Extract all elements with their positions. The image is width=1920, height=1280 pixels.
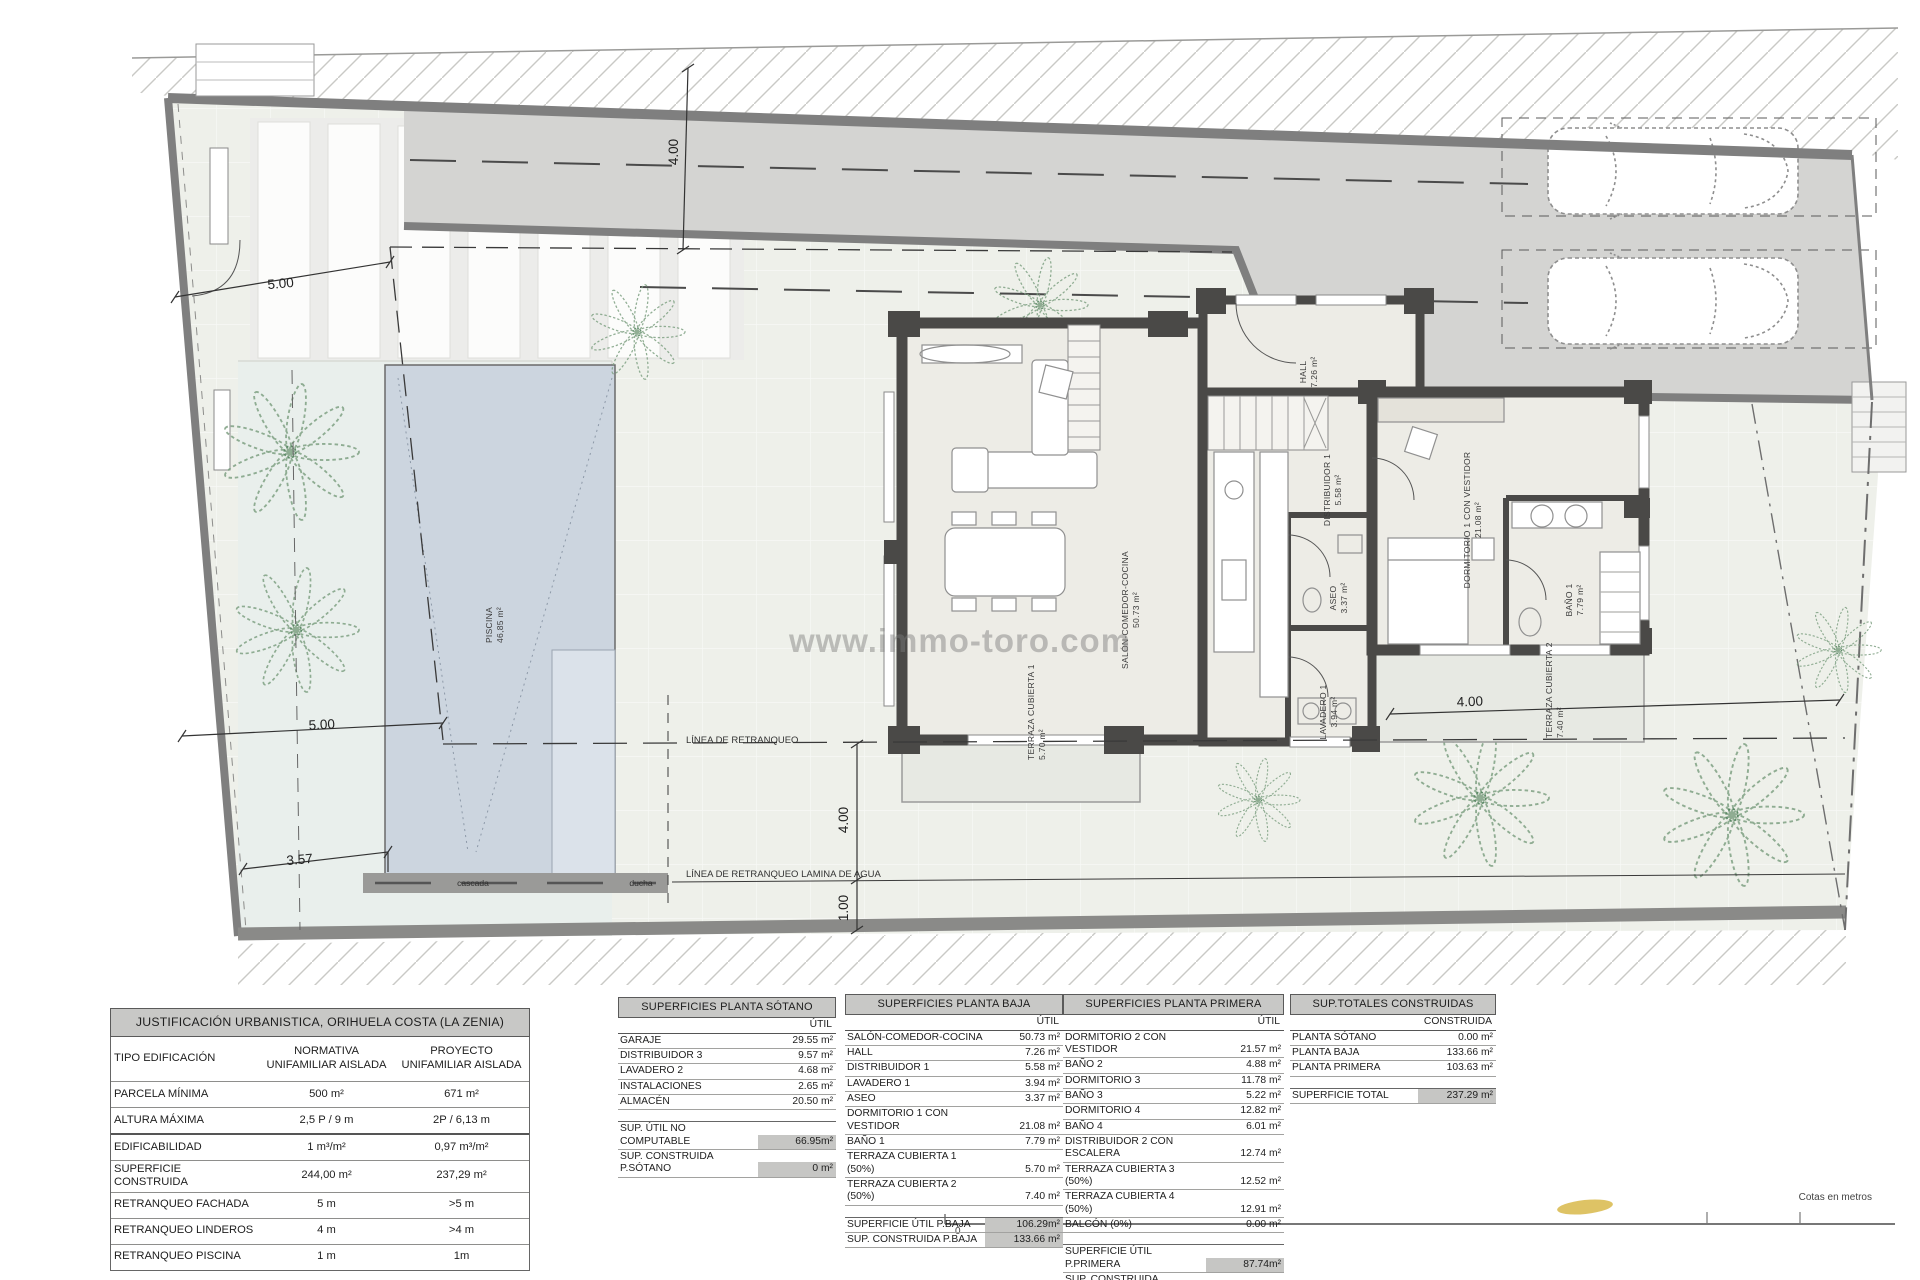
svg-text:7.79 m²: 7.79 m² [1575, 585, 1585, 616]
cell-proyecto: 0,97 m³/m² [394, 1139, 529, 1156]
table-planta-sotano: SUPERFICIES PLANTA SÓTANO ÚTIL GARAJE29.… [618, 997, 836, 1178]
svg-text:BAÑO 1: BAÑO 1 [1564, 584, 1574, 617]
cell-value: 0.00 m² [1206, 1218, 1284, 1232]
kitchen-counter [1260, 452, 1288, 697]
svg-text:HALL: HALL [1298, 361, 1308, 383]
gate-window [214, 390, 230, 470]
cell-proyecto: 1m [394, 1248, 529, 1265]
svg-text:DORMITORIO 1 CON VESTIDOR: DORMITORIO 1 CON VESTIDOR [1462, 452, 1472, 589]
cell-proyecto: 671 m² [394, 1086, 529, 1103]
table-row: BAÑO 46.01 m² [1063, 1120, 1284, 1135]
table-row: RETRANQUEO LINDEROS4 m>4 m [111, 1219, 529, 1245]
cell-label: TERRAZA CUBIERTA 1 (50%) [845, 1150, 985, 1177]
kitchen-island [1214, 452, 1254, 652]
pool: PISCINA 46,85 m² [385, 365, 615, 875]
table-row: SUP. CONSTRUIDA P.SÓTANO0 m² [618, 1150, 836, 1178]
room-label-bano1: BAÑO 1 7.79 m² [1564, 584, 1585, 617]
col-header: ÚTIL [1037, 1016, 1059, 1028]
table-row: ASEO3.37 m² [845, 1092, 1063, 1107]
cell-value: 6.01 m² [1206, 1120, 1284, 1134]
room-label-piscina: PISCINA 46,85 m² [484, 607, 505, 643]
table-row: EDIFICABILIDAD1 m³/m²0,97 m³/m² [111, 1135, 529, 1161]
cell-value: 3.37 m² [985, 1092, 1063, 1106]
cell-value: 29.55 m² [758, 1034, 836, 1048]
room-label-aseo: ASEO 3.37 m² [1328, 583, 1349, 614]
table-row: SUP. CONSTRUIDA P.PRIMERA103.63 m² [1063, 1273, 1284, 1280]
cell-label: RETRANQUEO PISCINA [111, 1248, 259, 1265]
cell-value: 66.95m² [758, 1135, 836, 1149]
cell-label: DORMITORIO 4 [1063, 1104, 1206, 1118]
cell-normativa: 1 m [259, 1248, 394, 1265]
table-row: PLANTA BAJA133.66 m² [1290, 1046, 1496, 1061]
floor-plan-sheet: PISCINA 46,85 m² cascada ducha [0, 0, 1920, 1280]
table-row: PLANTA SÓTANO0.00 m² [1290, 1031, 1496, 1046]
table-row: ALMACÉN20.50 m² [618, 1095, 836, 1110]
scale-marker [1556, 1197, 1613, 1217]
cell-label: SUP. CONSTRUIDA P.SÓTANO [618, 1150, 758, 1177]
table-row: RETRANQUEO FACHADA5 m>5 m [111, 1193, 529, 1219]
svg-text:5.00: 5.00 [308, 716, 335, 732]
cell-label: PLANTA SÓTANO [1290, 1031, 1418, 1045]
cell-normativa: NORMATIVA UNIFAMILIAR AISLADA [259, 1043, 394, 1074]
cell-value: 87.74m² [1206, 1258, 1284, 1272]
cell-label: ASEO [845, 1092, 985, 1106]
table-row: INSTALACIONES2.65 m² [618, 1080, 836, 1095]
cell-proyecto: 2P / 6,13 m [394, 1112, 529, 1129]
svg-text:7.26 m²: 7.26 m² [1309, 357, 1319, 388]
svg-text:TERRAZA CUBIERTA 1: TERRAZA CUBIERTA 1 [1026, 664, 1036, 760]
cell-label: PLANTA PRIMERA [1290, 1061, 1418, 1075]
cell-label: PLANTA BAJA [1290, 1046, 1418, 1060]
cell-value: 133.66 m² [985, 1233, 1063, 1247]
cell-value: 0 m² [758, 1162, 836, 1176]
cell-value: 50.73 m² [985, 1031, 1063, 1045]
parked-car [1548, 123, 1798, 219]
table-row: BALCÓN (0%)0.00 m² [1063, 1218, 1284, 1233]
retranqueo-agua-label: LÍNEA DE RETRANQUEO LAMINA DE AGUA [686, 869, 881, 880]
table-row: LAVADERO 13.94 m² [845, 1077, 1063, 1092]
cell-label: BAÑO 3 [1063, 1089, 1206, 1103]
cell-label: BAÑO 1 [845, 1135, 985, 1149]
svg-text:46,85 m²: 46,85 m² [495, 607, 505, 643]
cell-label: EDIFICABILIDAD [111, 1139, 259, 1156]
bed [1388, 538, 1468, 644]
table-totals: SUP. ÚTIL NO COMPUTABLE66.95m²SUP. CONST… [618, 1121, 836, 1177]
svg-text:3.37 m²: 3.37 m² [1339, 583, 1349, 614]
cell-label: TERRAZA CUBIERTA 3 (50%) [1063, 1163, 1206, 1190]
table-row: TERRAZA CUBIERTA 2 (50%)7.40 m² [845, 1178, 1063, 1206]
cell-label: DORMITORIO 2 CON VESTIDOR [1063, 1031, 1206, 1058]
pool-deck-bar: cascada ducha [363, 873, 668, 893]
table-planta-baja: SUPERFICIES PLANTA BAJA ÚTIL SALÓN-COMED… [845, 994, 1063, 1248]
table-row: TERRAZA CUBIERTA 1 (50%)5.70 m² [845, 1150, 1063, 1178]
cell-value: 4.68 m² [758, 1064, 836, 1078]
col-header: ÚTIL [1258, 1016, 1280, 1028]
table-row: LAVADERO 24.68 m² [618, 1064, 836, 1079]
table-justificacion: JUSTIFICACIÓN URBANISTICA, ORIHUELA COST… [110, 1008, 530, 1271]
parked-car [1548, 253, 1798, 349]
cell-value: 5.70 m² [985, 1163, 1063, 1177]
table-title: SUP.TOTALES CONSTRUIDAS [1290, 994, 1496, 1015]
cell-label: SUPERFICIE ÚTIL P.PRIMERA [1063, 1245, 1206, 1272]
cell-label: DISTRIBUIDOR 2 CON ESCALERA [1063, 1135, 1206, 1162]
svg-text:21.08 m²: 21.08 m² [1473, 502, 1483, 538]
cell-value: 12.74 m² [1206, 1147, 1284, 1161]
cell-label: DORMITORIO 1 CON VESTIDOR [845, 1107, 985, 1134]
cell-normativa: 244,00 m² [259, 1167, 394, 1184]
svg-text:5.00: 5.00 [267, 275, 294, 292]
cell-value: 12.82 m² [1206, 1104, 1284, 1118]
cell-label: BAÑO 4 [1063, 1120, 1206, 1134]
cell-normativa: 1 m³/m² [259, 1139, 394, 1156]
cell-proyecto: 237,29 m² [394, 1167, 529, 1184]
room-label-hall: HALL 7.26 m² [1298, 357, 1319, 388]
table-totales: SUP.TOTALES CONSTRUIDAS CONSTRUIDA PLANT… [1290, 994, 1496, 1104]
table-title: SUPERFICIES PLANTA BAJA [845, 994, 1063, 1015]
cell-label: SUPERFICIE TOTAL [1290, 1089, 1418, 1103]
cell-label: BAÑO 2 [1063, 1058, 1206, 1072]
svg-text:5.70 m²: 5.70 m² [1037, 729, 1047, 760]
cell-value: 12.91 m² [1206, 1203, 1284, 1217]
cell-value: 0.00 m² [1418, 1031, 1496, 1045]
cell-label: DISTRIBUIDOR 3 [618, 1049, 758, 1063]
cell-value: 7.79 m² [985, 1135, 1063, 1149]
cell-label: TERRAZA CUBIERTA 2 (50%) [845, 1178, 985, 1205]
table-row: SUPERFICIE ÚTIL P.PRIMERA87.74m² [1063, 1245, 1284, 1273]
table-row: TERRAZA CUBIERTA 3 (50%)12.52 m² [1063, 1163, 1284, 1191]
svg-text:4.00: 4.00 [1456, 694, 1483, 710]
table-row: DISTRIBUIDOR 39.57 m² [618, 1049, 836, 1064]
cell-value: 21.57 m² [1206, 1043, 1284, 1057]
svg-text:ASEO: ASEO [1328, 586, 1338, 611]
table-totals: SUPERFICIE ÚTIL P.BAJA106.29m²SUP. CONST… [845, 1217, 1063, 1249]
table-row: RETRANQUEO PISCINA1 m1m [111, 1245, 529, 1270]
terraza-cubierta-2 [1372, 650, 1644, 742]
cell-value: 21.08 m² [985, 1120, 1063, 1134]
table-totals: SUPERFICIE TOTAL237.29 m² [1290, 1088, 1496, 1104]
retranqueo-label: LÍNEA DE RETRANQUEO [686, 735, 798, 746]
table-row: SUPERFICIE ÚTIL P.BAJA106.29m² [845, 1218, 1063, 1233]
table-row: DORMITORIO 1 CON VESTIDOR21.08 m² [845, 1107, 1063, 1135]
table-row: BAÑO 35.22 m² [1063, 1089, 1284, 1104]
table-planta-primera: SUPERFICIES PLANTA PRIMERA ÚTIL DORMITOR… [1063, 994, 1284, 1280]
cell-value: 20.50 m² [758, 1095, 836, 1109]
table-row: BAÑO 24.88 m² [1063, 1058, 1284, 1073]
scale-caption: Cotas en metros [1799, 1192, 1872, 1203]
cell-value: 5.58 m² [985, 1061, 1063, 1075]
col-header: CONSTRUIDA [1424, 1016, 1492, 1028]
cell-label: ALMACÉN [618, 1095, 758, 1109]
table-row: ALTURA MÁXIMA2,5 P / 9 m2P / 6,13 m [111, 1108, 529, 1135]
cell-label: DORMITORIO 3 [1063, 1074, 1206, 1088]
cell-value: 4.88 m² [1206, 1058, 1284, 1072]
svg-text:5.58 m²: 5.58 m² [1333, 475, 1343, 506]
table-row: PLANTA PRIMERA103.63 m² [1290, 1061, 1496, 1076]
cell-value: 133.66 m² [1418, 1046, 1496, 1060]
table-row: DISTRIBUIDOR 15.58 m² [845, 1061, 1063, 1076]
table-row: SALÓN-COMEDOR-COCINA50.73 m² [845, 1031, 1063, 1046]
svg-text:LAVADERO 1: LAVADERO 1 [1318, 684, 1328, 739]
ducha-label: ducha [629, 878, 652, 888]
table-body: DORMITORIO 2 CON VESTIDOR21.57 m²BAÑO 24… [1063, 1031, 1284, 1234]
table-row: SUP. ÚTIL NO COMPUTABLE66.95m² [618, 1122, 836, 1150]
cell-label: DISTRIBUIDOR 1 [845, 1061, 985, 1075]
table-row: SUP. CONSTRUIDA P.BAJA133.66 m² [845, 1233, 1063, 1248]
cell-value: 103.63 m² [1418, 1061, 1496, 1075]
table-row: DORMITORIO 311.78 m² [1063, 1074, 1284, 1089]
table-body: GARAJE29.55 m²DISTRIBUIDOR 39.57 m²LAVAD… [618, 1034, 836, 1111]
cell-proyecto: >5 m [394, 1196, 529, 1213]
cell-label: SUPERFICIE ÚTIL P.BAJA [845, 1218, 985, 1232]
cascada-label: cascada [457, 878, 489, 888]
svg-text:4.00: 4.00 [666, 139, 681, 165]
wardrobe [1378, 398, 1504, 422]
cell-value: 2.65 m² [758, 1080, 836, 1094]
table-body: PLANTA SÓTANO0.00 m²PLANTA BAJA133.66 m²… [1290, 1031, 1496, 1077]
svg-text:TERRAZA CUBIERTA 2: TERRAZA CUBIERTA 2 [1544, 642, 1554, 738]
cell-value: 7.26 m² [985, 1046, 1063, 1060]
cell-label: SALÓN-COMEDOR-COCINA [845, 1031, 985, 1045]
cell-value: 11.78 m² [1206, 1074, 1284, 1088]
cell-normativa: 5 m [259, 1196, 394, 1213]
bath-counter [1512, 502, 1602, 528]
svg-text:7.40 m²: 7.40 m² [1555, 707, 1565, 738]
cell-label: BALCÓN (0%) [1063, 1218, 1206, 1232]
table-row: DORMITORIO 2 CON VESTIDOR21.57 m² [1063, 1031, 1284, 1059]
cell-label: HALL [845, 1046, 985, 1060]
table-row: HALL7.26 m² [845, 1046, 1063, 1061]
gate-window [210, 148, 228, 244]
svg-text:3.57: 3.57 [286, 851, 313, 868]
table-row: PARCELA MÍNIMA500 m²671 m² [111, 1082, 529, 1108]
table-row: BAÑO 17.79 m² [845, 1135, 1063, 1150]
cell-label: ALTURA MÁXIMA [111, 1112, 259, 1129]
cell-normativa: 4 m [259, 1222, 394, 1239]
table-body: TIPO EDIFICACIÓNNORMATIVA UNIFAMILIAR AI… [110, 1037, 530, 1271]
cell-value: 12.52 m² [1206, 1175, 1284, 1189]
svg-text:3.94 m²: 3.94 m² [1329, 697, 1339, 728]
cell-label: PARCELA MÍNIMA [111, 1086, 259, 1103]
cell-label: SUP. CONSTRUIDA P.BAJA [845, 1233, 985, 1247]
cell-value: 7.40 m² [985, 1190, 1063, 1204]
cell-value: 9.57 m² [758, 1049, 836, 1063]
table-row: GARAJE29.55 m² [618, 1034, 836, 1049]
cell-proyecto: >4 m [394, 1222, 529, 1239]
cell-label: LAVADERO 2 [618, 1064, 758, 1078]
table-row: TIPO EDIFICACIÓNNORMATIVA UNIFAMILIAR AI… [111, 1037, 529, 1082]
table-row: SUPERFICIE TOTAL237.29 m² [1290, 1089, 1496, 1104]
svg-text:50.73 m²: 50.73 m² [1131, 592, 1141, 628]
cell-proyecto: PROYECTO UNIFAMILIAR AISLADA [394, 1043, 529, 1074]
table-totals: SUPERFICIE ÚTIL P.PRIMERA87.74m²SUP. CON… [1063, 1244, 1284, 1280]
table-title: SUPERFICIES PLANTA SÓTANO [618, 997, 836, 1018]
col-header: ÚTIL [810, 1019, 832, 1031]
cell-label: TERRAZA CUBIERTA 4 (50%) [1063, 1190, 1206, 1217]
cell-label: SUP. ÚTIL NO COMPUTABLE [618, 1122, 758, 1149]
svg-text:PISCINA: PISCINA [484, 607, 494, 643]
cell-label: TIPO EDIFICACIÓN [111, 1050, 259, 1067]
cell-value: 237.29 m² [1418, 1089, 1496, 1103]
cell-normativa: 2,5 P / 9 m [259, 1112, 394, 1129]
table-body: SALÓN-COMEDOR-COCINA50.73 m²HALL7.26 m²D… [845, 1031, 1063, 1206]
cell-label: LAVADERO 1 [845, 1077, 985, 1091]
table-title: JUSTIFICACIÓN URBANISTICA, ORIHUELA COST… [110, 1008, 530, 1037]
cell-value: 3.94 m² [985, 1077, 1063, 1091]
table-row: SUPERFICIE CONSTRUIDA244,00 m²237,29 m² [111, 1161, 529, 1193]
table-row: DISTRIBUIDOR 2 CON ESCALERA12.74 m² [1063, 1135, 1284, 1163]
cell-label: SUP. CONSTRUIDA P.PRIMERA [1063, 1273, 1206, 1280]
cell-value: 106.29m² [985, 1218, 1063, 1232]
cell-label: RETRANQUEO LINDEROS [111, 1222, 259, 1239]
table-row: TERRAZA CUBIERTA 4 (50%)12.91 m² [1063, 1190, 1284, 1218]
cell-label: INSTALACIONES [618, 1080, 758, 1094]
table-row: DORMITORIO 412.82 m² [1063, 1104, 1284, 1119]
watermark: www.immo-toro.com [789, 622, 1131, 660]
cell-normativa: 500 m² [259, 1086, 394, 1103]
svg-text:4.00: 4.00 [836, 807, 851, 833]
svg-text:DISTRIBUIDOR 1: DISTRIBUIDOR 1 [1322, 454, 1332, 526]
cell-value: 5.22 m² [1206, 1089, 1284, 1103]
shower [1600, 552, 1640, 644]
table-title: SUPERFICIES PLANTA PRIMERA [1063, 994, 1284, 1015]
svg-text:1.00: 1.00 [836, 895, 851, 921]
right-stair [1852, 382, 1906, 472]
cell-label: GARAJE [618, 1034, 758, 1048]
cell-label: SUPERFICIE CONSTRUIDA [111, 1161, 259, 1192]
cell-label: RETRANQUEO FACHADA [111, 1196, 259, 1213]
